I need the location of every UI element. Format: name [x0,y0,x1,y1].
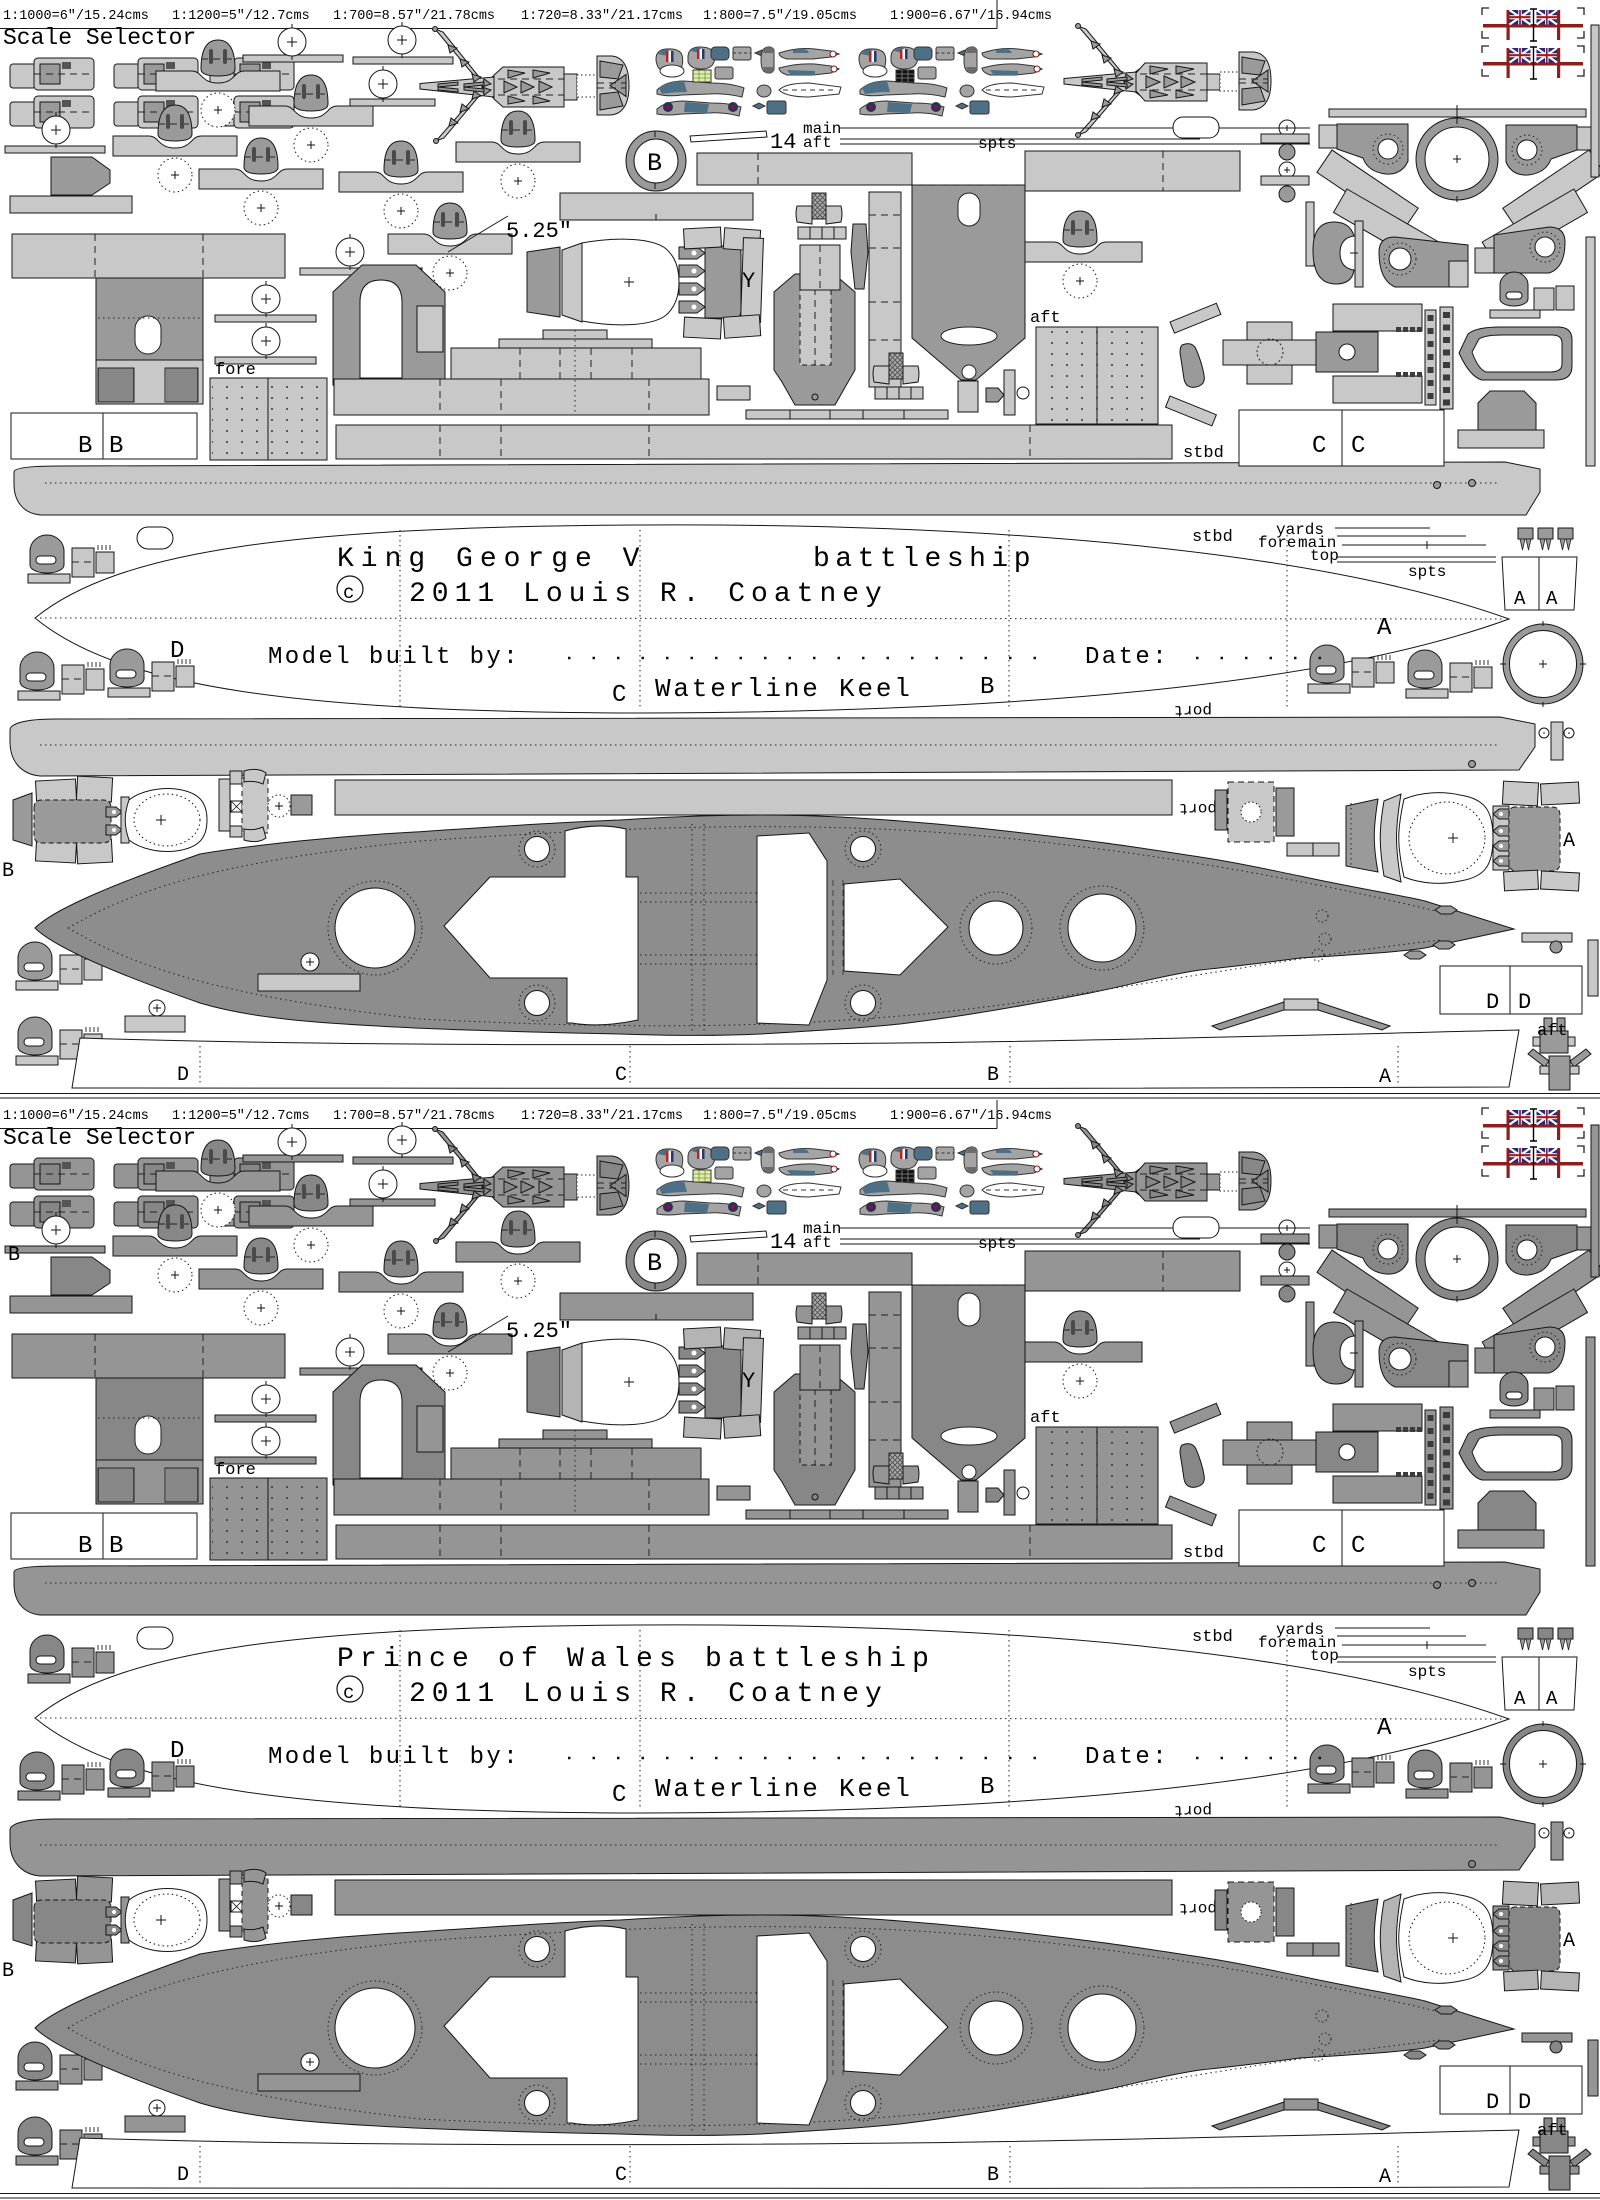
svg-text:Prince of Wales battleship: Prince of Wales battleship [337,1644,935,1675]
svg-text:c: c [343,582,354,604]
svg-text:Date:: Date: [1085,1744,1169,1771]
svg-text:Model built by:: Model built by: [268,644,520,671]
svg-text:Date:: Date: [1085,644,1169,671]
svg-text:2011 Louis R. Coatney: 2011 Louis R. Coatney [409,579,888,610]
svg-text:Waterline Keel: Waterline Keel [655,674,913,704]
svg-text:2011 Louis R. Coatney: 2011 Louis R. Coatney [409,1679,888,1710]
svg-text:c: c [343,1682,354,1704]
svg-text:Waterline Keel: Waterline Keel [655,1774,913,1804]
svg-text:battleship: battleship [813,544,1036,575]
svg-text:B: B [8,1244,20,1267]
svg-text:King George V: King George V [337,544,646,575]
svg-text:Model built by:: Model built by: [268,1744,520,1771]
